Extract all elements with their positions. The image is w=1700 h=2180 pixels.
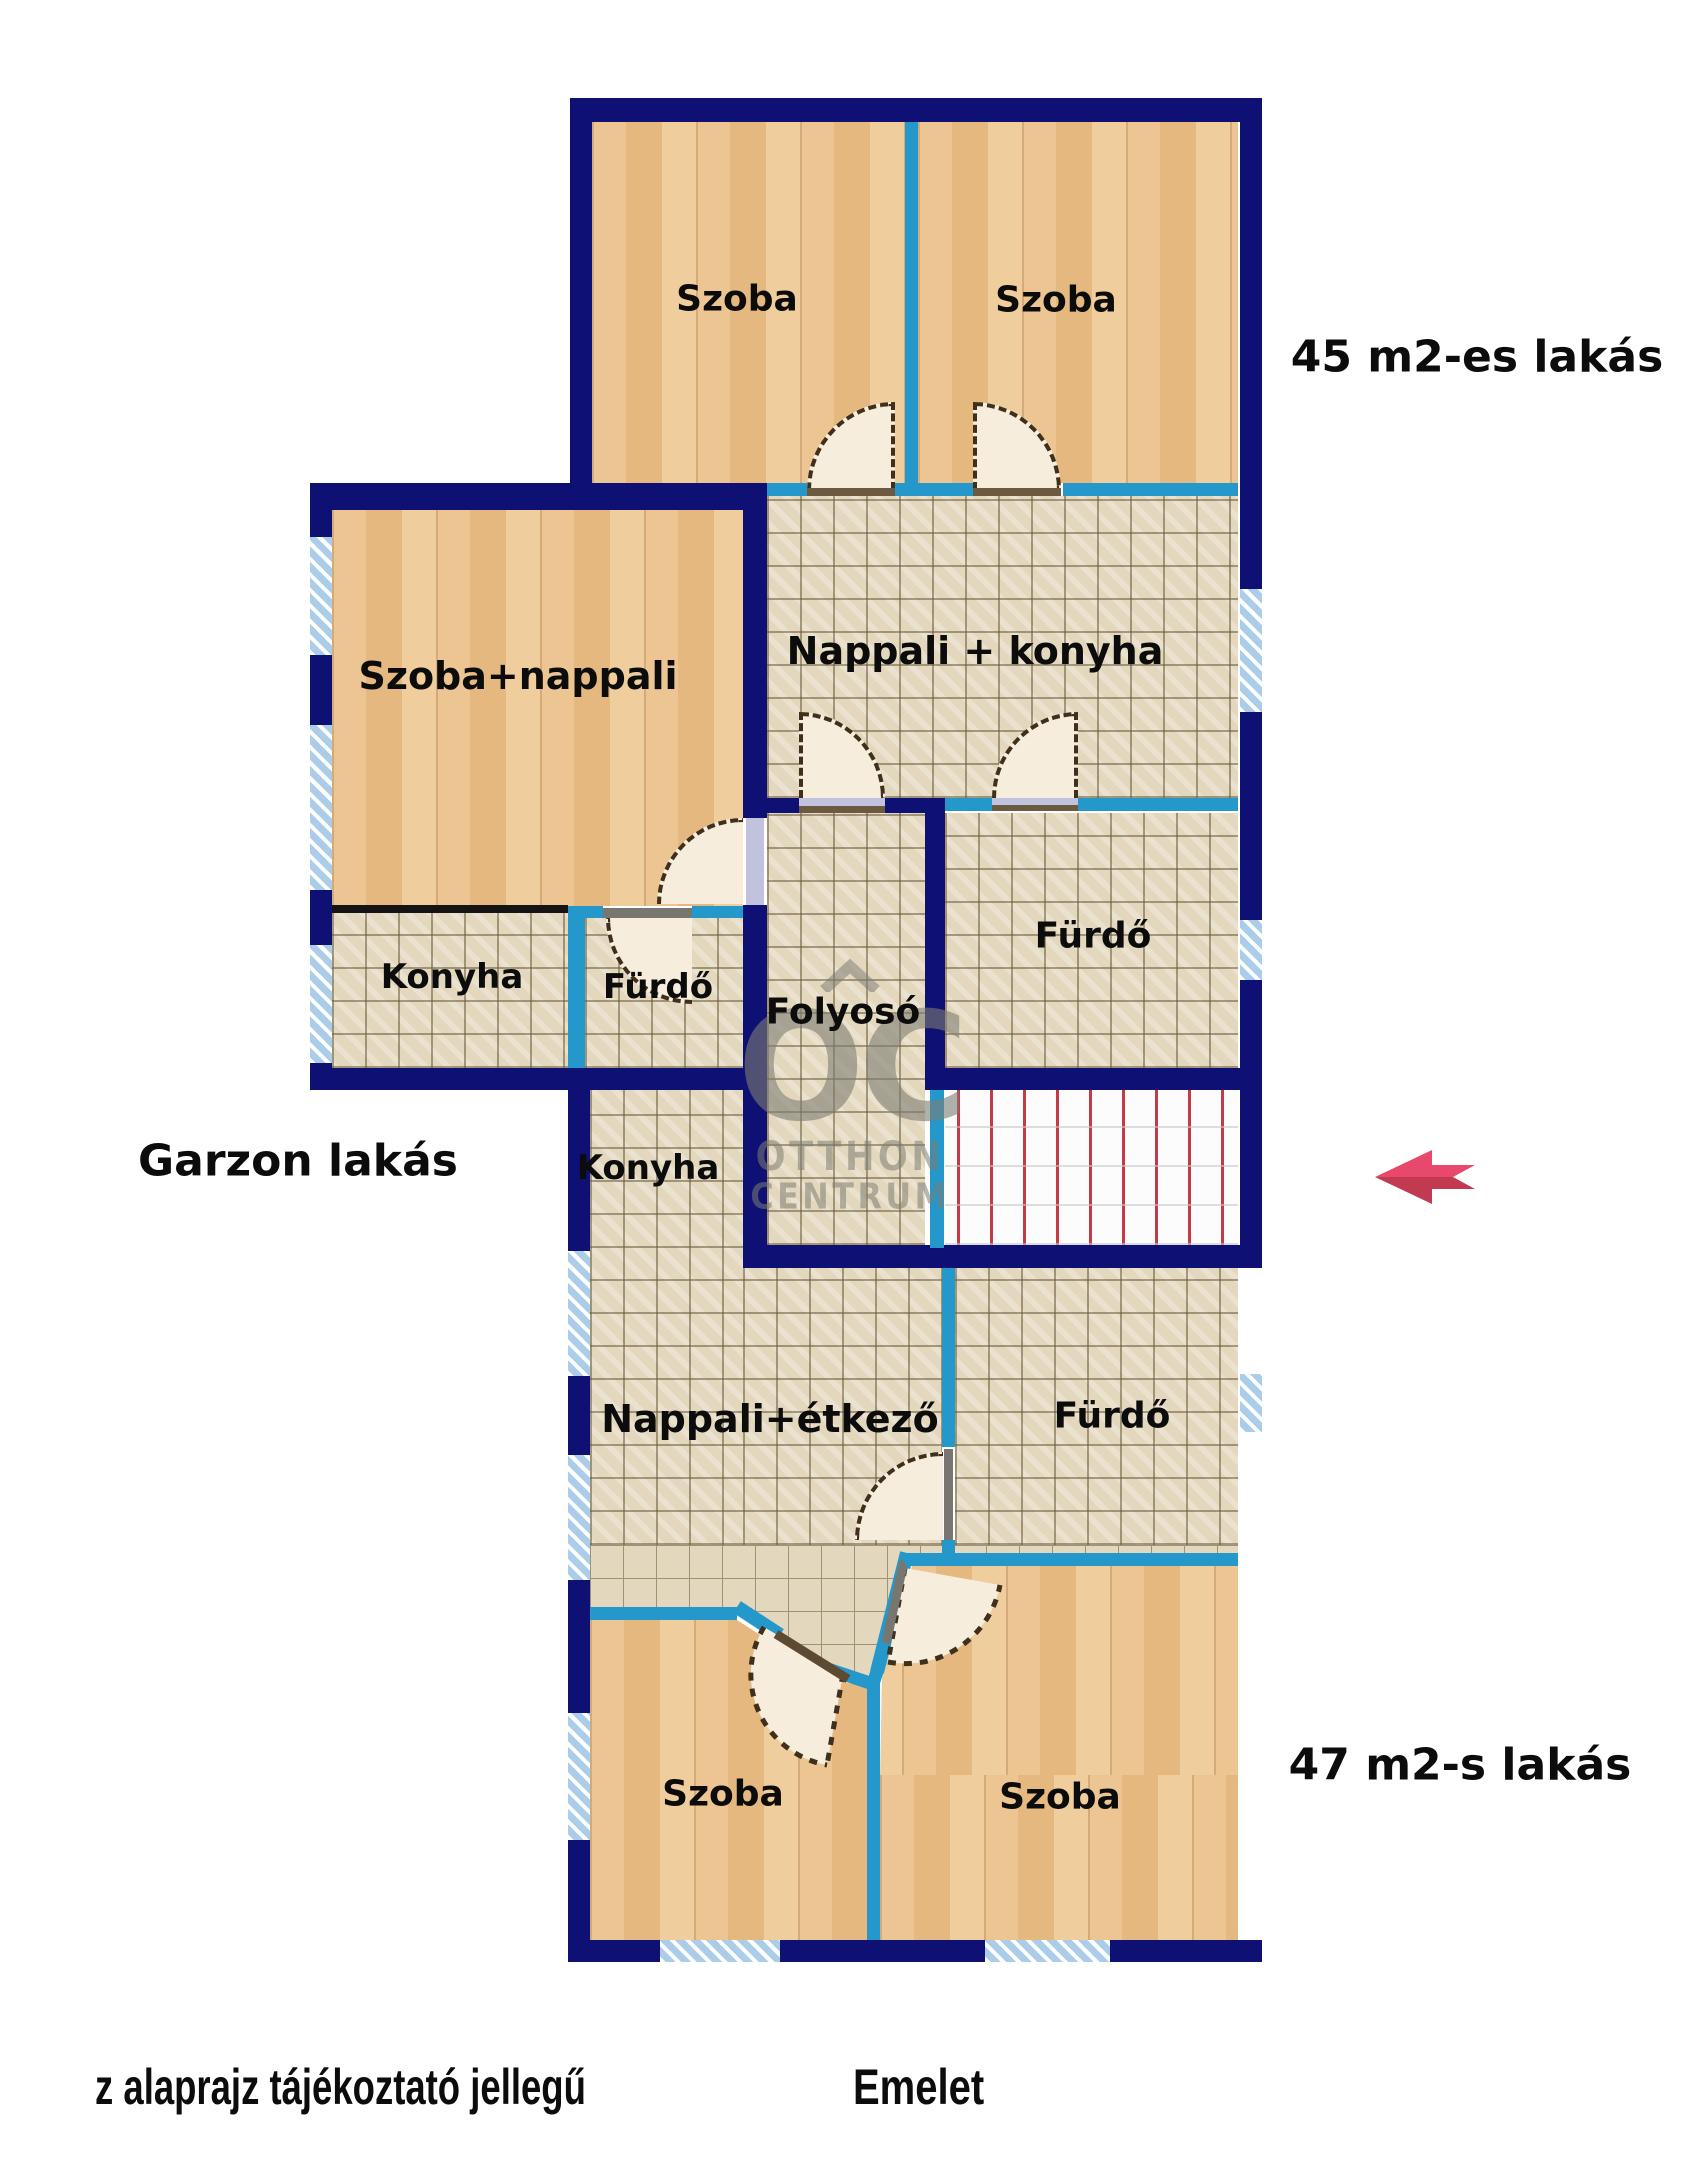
watermark-line2: CENTRUM — [750, 1177, 949, 1218]
window-right-2 — [1240, 920, 1262, 980]
wall-outer-left-45 — [570, 98, 592, 510]
window-47-left-3 — [568, 1713, 590, 1840]
window-right-1 — [1240, 589, 1262, 712]
wall-nk-bottom-seg-b — [885, 798, 925, 813]
wall-nappali-szoba47l — [590, 1607, 737, 1620]
label-konyha-garzon: Konyha — [381, 957, 524, 997]
label-furdo-garzon: Fürdő — [603, 967, 713, 1007]
window-47-left-1 — [568, 1251, 590, 1376]
wall-szoba47r-top — [905, 1553, 1238, 1566]
window-47-left-2 — [568, 1455, 590, 1580]
label-furdo-45: Fürdő — [1035, 916, 1152, 957]
wall-nk-furdo45-a — [945, 798, 992, 811]
wall-furdo47-divider-a — [942, 1268, 955, 1447]
label-folyoso: Folyosó — [766, 992, 921, 1033]
wall-outer-bottom-a — [570, 1940, 660, 1962]
wall-garzon-bottom — [310, 1068, 767, 1090]
konyha-garzon-boundary-line — [332, 905, 568, 913]
wall-outer-right-b — [1240, 712, 1262, 920]
wall-spine-a — [743, 483, 767, 818]
window-garzon-left-1 — [310, 537, 332, 655]
staircase — [945, 1090, 1238, 1245]
door-sill — [992, 798, 1078, 805]
wall-furdo47-divider-b — [942, 1540, 955, 1553]
door-leaf — [603, 908, 692, 918]
wall-outer-bottom-b — [780, 1940, 985, 1962]
label-szoba-45-left: Szoba — [676, 279, 798, 320]
label-szoba-47-left: Szoba — [662, 1774, 784, 1815]
wall-outer-top — [570, 98, 1262, 122]
label-nappali-etkezo: Nappali+étkező — [601, 1397, 939, 1441]
wall-szoba45-bottom-a — [767, 483, 807, 496]
partition-garzon — [568, 913, 585, 1068]
wall-garzon-left-a — [310, 483, 332, 537]
label-nappali-konyha: Nappali + konyha — [787, 629, 1164, 673]
label-szoba-45-right: Szoba — [995, 280, 1117, 321]
wall-szoba45-bottom-c — [1063, 483, 1238, 496]
label-garzon: Garzon lakás — [138, 1136, 458, 1187]
window-right-3 — [1240, 1374, 1262, 1432]
label-apartment-45: 45 m2-es lakás — [1291, 332, 1664, 383]
wall-47-left-b — [568, 1376, 590, 1455]
label-szoba-nappali: Szoba+nappali — [358, 654, 677, 698]
wall-nk-bottom-seg-a — [767, 798, 799, 813]
label-szoba-47-right: Szoba — [999, 1777, 1121, 1818]
wall-outer-right-c — [1240, 980, 1262, 1268]
wall-47-left-c — [568, 1580, 590, 1713]
door-sill — [799, 806, 885, 813]
wall-szoba45-bottom-b — [895, 483, 973, 496]
wall-furdo45-bottom — [925, 1068, 1262, 1090]
footer-disclaimer: z alaprajz tájékoztató jellegű — [95, 2058, 586, 2116]
window-bottom-2 — [985, 1940, 1110, 1962]
window-garzon-left-2 — [310, 725, 332, 890]
window-bottom-1 — [660, 1940, 780, 1962]
wall-garzonfurdo-top-b — [692, 906, 743, 918]
label-furdo-47: Fürdő — [1054, 1396, 1171, 1437]
floor-plan-canvas: Szoba Szoba Nappali + konyha Szoba+nappa… — [0, 0, 1700, 2180]
direction-arrow-icon — [1375, 1148, 1477, 1204]
wall-nk-furdo45-b — [1078, 798, 1238, 811]
wall-garzon-top — [310, 483, 767, 510]
door-sill — [992, 805, 1078, 811]
window-garzon-left-3 — [310, 945, 332, 1063]
footer-floor: Emelet — [853, 2058, 984, 2116]
door-sill — [746, 818, 764, 905]
wall-garzon-left-b — [310, 655, 332, 725]
wall-garzon-left-c — [310, 890, 332, 945]
partition-szoba45 — [905, 122, 918, 483]
label-konyha-47: Konyha — [577, 1148, 720, 1188]
door-sill — [799, 798, 885, 806]
label-apartment-47: 47 m2-s lakás — [1289, 1740, 1632, 1791]
door-leaf — [944, 1449, 953, 1540]
partition-szoba47 — [867, 1678, 880, 1940]
door-sill — [807, 488, 895, 496]
door-sill — [973, 488, 1061, 496]
wall-47-top — [743, 1245, 1262, 1268]
watermark-line1: OTTHON — [756, 1134, 945, 1180]
wall-outer-bottom-c — [1110, 1940, 1262, 1962]
diagonal-walls-and-doors — [590, 1545, 1250, 1775]
wall-outer-right-a — [1240, 98, 1262, 589]
